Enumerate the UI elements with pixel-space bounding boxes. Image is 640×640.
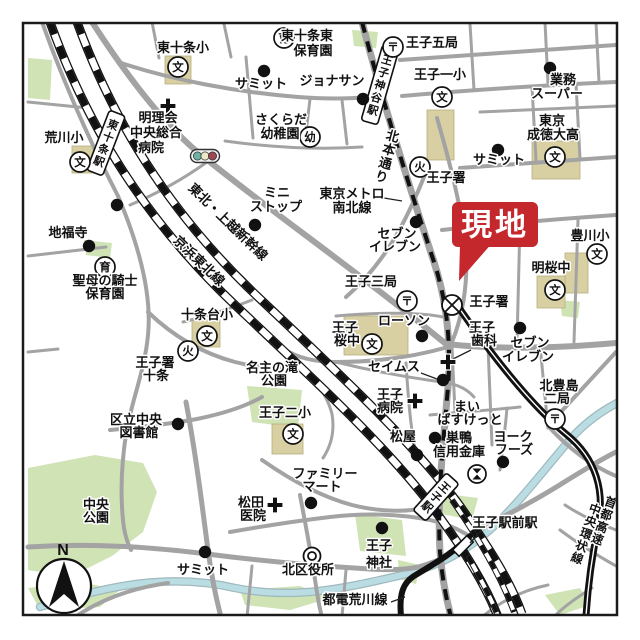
map-label: 中央総合: [130, 125, 183, 140]
post-office-icon: 〒: [545, 409, 565, 429]
map-label: 医院: [240, 508, 266, 523]
map-label: イレブン: [369, 239, 421, 254]
map-label: サミット: [473, 152, 525, 167]
map-label: ローソン: [378, 313, 430, 328]
school-icon-glyph: 文: [287, 427, 299, 441]
post-office-icon: 〒: [397, 291, 417, 311]
map-label: 王子一小: [414, 67, 466, 82]
map-label: 豊川小: [570, 228, 609, 243]
school-icon: 文: [545, 147, 565, 167]
traffic-light-lamp: [208, 152, 216, 160]
school-icon: 文: [70, 152, 90, 172]
map-label: 王子署: [469, 294, 508, 309]
map-label: 公園: [83, 510, 109, 525]
school-icon-glyph: 文: [366, 337, 378, 351]
map-label: 業務: [549, 72, 577, 87]
poi-dot: [111, 199, 123, 211]
park-area: [28, 58, 52, 100]
map-label: ストップ: [250, 199, 303, 214]
poi-dot: [416, 330, 428, 342]
map-label: 松屋: [390, 429, 416, 444]
map-label: 北区役所: [282, 562, 334, 577]
map-label: 幼稚園: [260, 126, 299, 141]
traffic-light-lamp: [201, 152, 209, 160]
poi-dot: [429, 432, 441, 444]
map-label: 王子二小: [259, 405, 311, 420]
map-label: フーズ: [495, 442, 533, 457]
school-icon-glyph: 文: [549, 150, 561, 164]
fire-station-icon-glyph: 火: [182, 345, 194, 358]
kindergarten-icon-glyph: 幼: [304, 130, 316, 144]
map-label: セブン: [510, 335, 549, 350]
school-icon-glyph: 文: [591, 247, 603, 261]
post-office-icon-glyph: 〒: [387, 41, 399, 54]
map-label: セイムス: [368, 359, 420, 374]
poi-dot: [305, 497, 317, 509]
map-label: 東京: [539, 113, 565, 128]
map-label: 王子駅前駅: [472, 515, 538, 530]
map-label: 王子五局: [406, 35, 458, 50]
map-label: 東十条小: [157, 40, 209, 55]
map-content: 東十条駅王子神谷駅王子駅文文文文文文文文文〒〒〒火火育育幼東十条小サミットジョナ…: [23, 22, 619, 617]
map-label: 十条: [143, 368, 170, 383]
map-label: 十条台小: [181, 307, 233, 322]
poi-dot: [199, 546, 211, 558]
school-icon-glyph: 文: [549, 283, 561, 297]
poi-dot: [357, 93, 369, 105]
map-label: 神社: [366, 555, 392, 570]
map-label: 公園: [261, 373, 287, 388]
post-office-icon-glyph: 〒: [401, 295, 413, 308]
post-office-icon-glyph: 〒: [549, 413, 561, 426]
map-label: サミット: [177, 562, 229, 577]
map-label: 信用金庫: [433, 444, 485, 459]
school-icon: 文: [587, 244, 607, 264]
poi-dot: [376, 522, 388, 534]
police-station-icon: [442, 295, 462, 315]
school-icon: 文: [283, 424, 303, 444]
school-icon-glyph: 文: [201, 329, 213, 343]
map-label: 桜中: [334, 333, 360, 348]
map-label: 都電荒川線: [321, 592, 388, 607]
poi-dot: [514, 322, 526, 334]
school-icon: 文: [432, 87, 452, 107]
map-label: 荒川小: [43, 130, 83, 145]
site-marker-label: 現地: [461, 208, 529, 243]
poi-dot: [437, 374, 449, 386]
map-label: さくらだ: [255, 112, 307, 127]
kindergarten-icon: 幼: [300, 127, 320, 147]
map-label: 病院: [377, 400, 403, 415]
poi-dot: [497, 456, 509, 468]
map-label: ジョナサン: [299, 73, 364, 88]
school-icon: 文: [545, 280, 565, 300]
bank-icon: [468, 465, 486, 483]
map-label: 二局: [544, 391, 570, 406]
nursery-icon-glyph: 育: [99, 260, 111, 274]
poi-dot: [249, 219, 261, 231]
map-label: ミニ: [264, 185, 290, 200]
map-label: 保育園: [84, 286, 124, 301]
map-label: 巣鴨: [445, 430, 472, 445]
map-label: ばすけっと: [437, 412, 502, 427]
school-icon: 文: [362, 334, 382, 354]
ward-inner: [308, 552, 316, 560]
fire-station-icon-glyph: 火: [414, 161, 426, 174]
map-label: 王子署: [426, 170, 465, 185]
poi-dot: [411, 449, 423, 461]
map-label: 明理会: [138, 110, 178, 125]
map-label: マート: [302, 479, 341, 494]
school-icon: 文: [168, 57, 188, 77]
map-label: 病院: [138, 140, 164, 155]
map-label: イレブン: [502, 349, 554, 364]
poi-dot: [172, 418, 184, 430]
map-page: 東十条駅王子神谷駅王子駅文文文文文文文文文〒〒〒火火育育幼東十条小サミットジョナ…: [0, 0, 640, 640]
school-icon-glyph: 文: [172, 60, 184, 74]
map-label: スーパー: [531, 86, 583, 101]
map-label: 歯科: [471, 333, 497, 348]
map-label: 王子三局: [345, 274, 397, 289]
bank-circle: [468, 465, 486, 483]
map-label: 明桜中: [531, 260, 570, 275]
map-label: 東十条東: [281, 28, 333, 43]
map-label: 図書館: [119, 425, 158, 440]
map-label: 成徳大高: [527, 127, 579, 142]
school-icon-glyph: 文: [436, 90, 448, 104]
map-label: 王子: [366, 538, 392, 553]
map-label: 地福寺: [48, 225, 87, 240]
poi-dot: [83, 240, 95, 252]
map-label: 保育園: [292, 43, 332, 58]
map-label: 東京メトロ: [319, 186, 384, 201]
school-icon-glyph: 文: [74, 155, 86, 169]
post-office-icon: 〒: [383, 37, 403, 57]
map-label: 南北線: [332, 200, 372, 215]
traffic-light-icon: [191, 150, 220, 163]
traffic-light-lamp: [193, 152, 201, 160]
school-icon: 文: [197, 326, 217, 346]
access-map: 東十条駅王子神谷駅王子駅文文文文文文文文文〒〒〒火火育育幼東十条小サミットジョナ…: [0, 0, 640, 640]
fire-station-icon: 火: [178, 341, 198, 361]
map-label: サミット: [235, 76, 287, 91]
compass-label: N: [57, 542, 69, 559]
